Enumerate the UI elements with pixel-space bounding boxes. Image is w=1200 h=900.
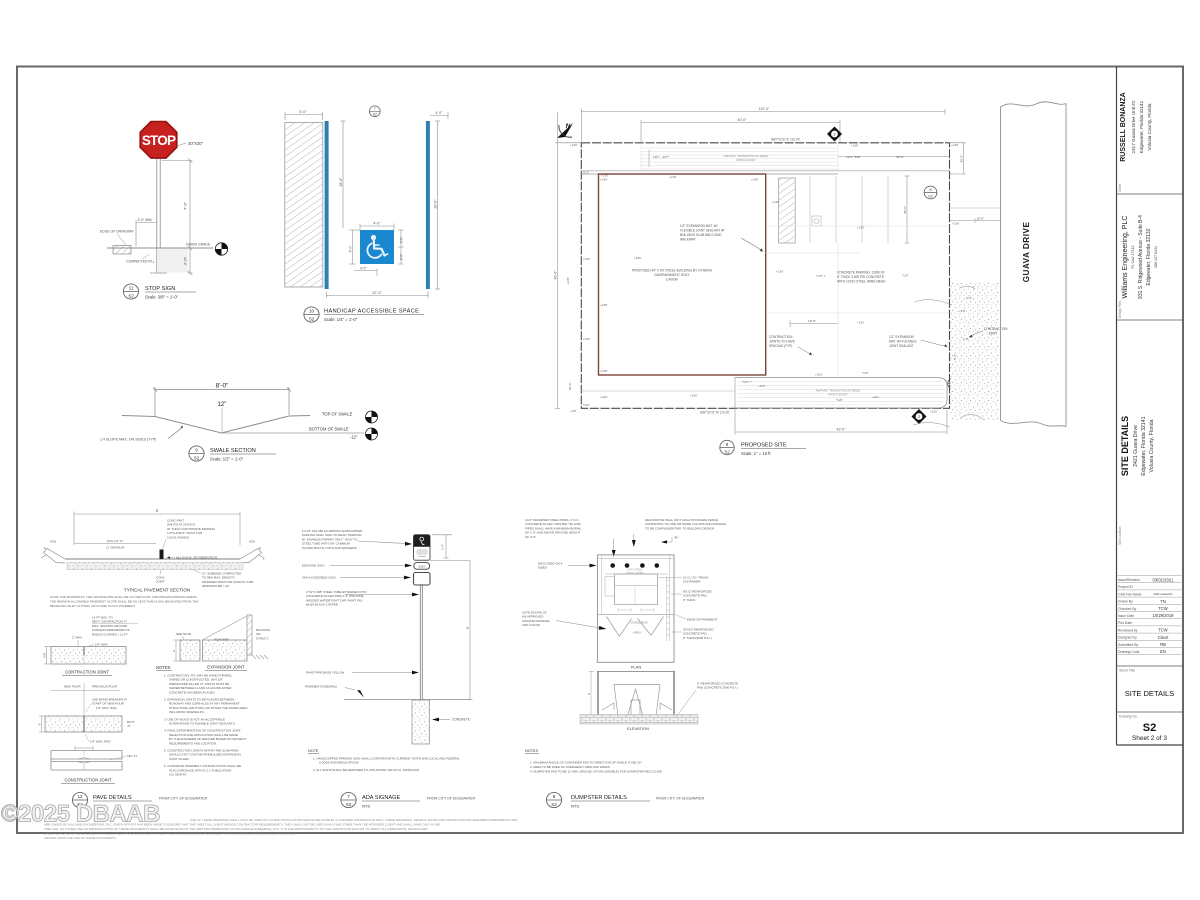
svg-text:JOINT: JOINT xyxy=(156,580,165,584)
svg-text:SEE NOTE: SEE NOTE xyxy=(176,632,191,636)
svg-text:Site Location: Site Location xyxy=(1118,526,1122,545)
svg-text:N89°52'31"E 110.00': N89°52'31"E 110.00' xyxy=(771,138,800,142)
svg-text:931 S. Ridgewood Avenue - Suit: 931 S. Ridgewood Avenue - Suite B-4 xyxy=(1138,215,1144,299)
svg-text:#10 W.W.M. OR FIBERCRETE: #10 W.W.M. OR FIBERCRETE xyxy=(176,556,217,560)
svg-text:RADIUS CURVES + 12 FT: RADIUS CURVES + 12 FT xyxy=(92,632,128,636)
svg-text:ELEVATION: ELEVATION xyxy=(627,726,649,731)
svg-text:PLATED BOLTS, NUTS AND WASHERS: PLATED BOLTS, NUTS AND WASHERS xyxy=(302,546,357,550)
svg-text:S2: S2 xyxy=(346,802,352,807)
svg-text:Williams Engineering, PLC: Williams Engineering, PLC xyxy=(1122,216,1129,299)
svg-text:S2: S2 xyxy=(1143,722,1156,734)
svg-text:Volusia County, Florida: Volusia County, Florida xyxy=(1147,103,1152,150)
svg-text:PAD (CONCRETE 3000 P.S.I.): PAD (CONCRETE 3000 P.S.I.) xyxy=(697,686,738,690)
svg-text:#6119 BLACK COFFEE: #6119 BLACK COFFEE xyxy=(306,603,338,607)
svg-text:8'-0": 8'-0" xyxy=(216,383,229,390)
svg-text:TN: TN xyxy=(1160,599,1166,604)
svg-text:+138': +138' xyxy=(600,369,608,373)
svg-text:DUMPSTER DETAILS: DUMPSTER DETAILS xyxy=(571,795,627,801)
svg-text:CONCRETE: CONCRETE xyxy=(452,718,470,722)
svg-text:2. ALL SIGNS SHALL BE DESIGN: 2. ALL SIGNS SHALL BE DESIGNED TO WITHST… xyxy=(313,768,420,772)
svg-text:TIME USE. NO OTHER USE OR REP: TIME USE. NO OTHER USE OR REPRODUCTION O… xyxy=(44,827,428,831)
svg-text:S89°52'31"W 110.00': S89°52'31"W 110.00' xyxy=(700,411,730,415)
svg-text:Sheet Title: Sheet Title xyxy=(1119,669,1135,673)
svg-text:ACI 330R-87.: ACI 330R-87. xyxy=(169,773,187,777)
svg-text:R: R xyxy=(259,546,261,550)
svg-text:30'-4": 30'-4" xyxy=(896,155,904,159)
svg-text:5': 5' xyxy=(466,626,470,629)
svg-text:2'-6": 2'-6" xyxy=(400,236,404,243)
svg-text:EN: EN xyxy=(1160,649,1166,654)
svg-text:CAD File Name: CAD File Name xyxy=(1118,592,1142,596)
svg-text:+138': +138' xyxy=(600,303,608,307)
svg-text:OF 3'-6": OF 3'-6" xyxy=(525,535,536,539)
svg-text:EXPANSION JOINT: EXPANSION JOINT xyxy=(207,665,245,670)
svg-text:SITE DETAILS: SITE DETAILS xyxy=(1120,416,1130,476)
svg-text:6" THICK: 6" THICK xyxy=(683,598,696,602)
svg-text:6" THICK(3000 P.S.I.): 6" THICK(3000 P.S.I.) xyxy=(683,636,712,640)
svg-text:USE OF THESE DRAWINGS SHALL ON: USE OF THESE DRAWINGS SHALL ONLY BE USED… xyxy=(190,818,518,822)
svg-text:PAINT PIPE BASE YELLOW: PAINT PIPE BASE YELLOW xyxy=(306,671,345,675)
svg-text:+0'0": +0'0" xyxy=(570,409,577,413)
svg-text:42'-0": 42'-0" xyxy=(837,428,847,432)
svg-text:6" THICK 3,000 PSI CONCRETE: 6" THICK 3,000 PSI CONCRETE xyxy=(837,275,884,279)
svg-text:PROPOSED 40' X 60' STEEL BUILD: PROPOSED 40' X 60' STEEL BUILDING BY OTH… xyxy=(632,269,713,273)
svg-text:+126': +126' xyxy=(690,394,698,398)
svg-text:NOTES: NOTES xyxy=(525,749,539,753)
svg-text:SCREENING: SCREENING xyxy=(630,621,649,625)
svg-text:CONCRETE PARKING: 2,886 SF: CONCRETE PARKING: 2,886 SF xyxy=(837,271,885,275)
svg-text:WITH 10X10 STEEL WIRE MESH: WITH 10X10 STEEL WIRE MESH xyxy=(837,280,886,284)
svg-text:9: 9 xyxy=(195,448,198,453)
svg-text:18'-0": 18'-0" xyxy=(339,177,343,187)
svg-text:ROADWAY: ROADWAY xyxy=(214,638,229,642)
svg-text:2: 2 xyxy=(918,415,920,419)
svg-text:-12": -12" xyxy=(350,435,358,440)
svg-text:INCLUDING SIDEWALKS.: INCLUDING SIDEWALKS. xyxy=(169,710,205,714)
svg-text:AND COLOR: AND COLOR xyxy=(522,623,541,627)
svg-text:TCW: TCW xyxy=(1158,628,1168,633)
svg-text:*127'-?: *127'-? xyxy=(742,380,752,384)
svg-text:CONTRACTION: CONTRACTION xyxy=(984,327,1008,331)
svg-text:8: 8 xyxy=(929,188,931,192)
svg-text:GUAVA DRIVE: GUAVA DRIVE xyxy=(1022,222,1031,283)
svg-text:CONTAINER: CONTAINER xyxy=(683,580,701,584)
svg-text:Submitted By: Submitted By xyxy=(1118,643,1138,647)
svg-text:WALKWAY: WALKWAY xyxy=(680,238,697,242)
svg-text:Client: Client xyxy=(1118,184,1122,192)
svg-text:RB: RB xyxy=(1160,642,1166,647)
svg-text:03/01/2021: 03/01/2021 xyxy=(1153,577,1175,582)
svg-text:FROM CITY OF EDGEWATER: FROM CITY OF EDGEWATER xyxy=(427,797,476,801)
svg-text:DIAGRAMMATIC ONLY: DIAGRAMMATIC ONLY xyxy=(654,273,690,277)
svg-text:FLEXIBLE JOINT SEALANT AT: FLEXIBLE JOINT SEALANT AT xyxy=(680,229,725,233)
svg-text:2: 2 xyxy=(834,133,836,137)
svg-text:Drawing Code: Drawing Code xyxy=(1118,650,1140,654)
svg-text:S2: S2 xyxy=(724,449,730,454)
svg-text:PLAN: PLAN xyxy=(631,665,642,670)
svg-text:CODES AND REGULATIONS: CODES AND REGULATIONS xyxy=(319,761,359,765)
svg-text:45'-2": 45'-2" xyxy=(960,155,964,163)
svg-text:18'-8": 18'-8" xyxy=(808,319,816,323)
svg-text:+108': +108' xyxy=(566,277,570,285)
svg-text:MATCH EXIST: MATCH EXIST xyxy=(736,158,755,162)
svg-text:JOINT: JOINT xyxy=(988,332,997,336)
svg-text:+102': +102' xyxy=(815,373,823,377)
svg-text:JT.: JT. xyxy=(127,724,131,728)
svg-text:EDGE OF PAVEMENT: EDGE OF PAVEMENT xyxy=(687,618,718,622)
svg-text:VAN ACCESSIBLE SIGN: VAN ACCESSIBLE SIGN xyxy=(302,576,336,580)
svg-text:6": 6" xyxy=(172,649,176,651)
svg-text:6"/8": 6"/8" xyxy=(43,652,47,658)
svg-text:MATCH EXIST: MATCH EXIST xyxy=(828,393,847,397)
svg-text:5'-0": 5'-0" xyxy=(349,245,353,253)
svg-text:2'X6' STEEL: 2'X6' STEEL xyxy=(627,568,643,572)
svg-text:*137': *137' xyxy=(583,403,590,407)
svg-text:1/2" EXPANSION: 1/2" EXPANSION xyxy=(889,335,915,339)
svg-text:*137'-?: *137'-? xyxy=(816,274,826,278)
svg-text:NOTES: NOTES xyxy=(156,665,171,670)
svg-text:Drawing No.: Drawing No. xyxy=(1119,715,1138,719)
svg-text:JOINTS TO HAVE: JOINTS TO HAVE xyxy=(769,340,795,344)
svg-text:THE MINIMUM ALLOWABLE PAVEMEN: THE MINIMUM ALLOWABLE PAVEMENT SLOPE SHA… xyxy=(50,599,198,603)
svg-text:RECEIVING INLET, GUTTER, OR: RECEIVING INLET, GUTTER, OR FLUME TO ANY… xyxy=(50,604,135,608)
svg-text:Scale: 1" = 10 ft: Scale: 1" = 10 ft xyxy=(741,451,771,456)
svg-text:5'-0": 5'-0" xyxy=(299,110,307,114)
svg-text:7: 7 xyxy=(347,794,350,799)
svg-text:110'-0": 110'-0" xyxy=(759,107,770,111)
svg-text:2,400SF: 2,400SF xyxy=(666,278,678,282)
svg-text:Scale: 1/4" = 1'-0": Scale: 1/4" = 1'-0" xyxy=(324,317,358,322)
svg-text:*137': *137' xyxy=(862,371,869,375)
svg-text:Edgewater, Florida 32141: Edgewater, Florida 32141 xyxy=(1139,100,1144,153)
svg-text:SPECIFICATIONS IN THIS DOCUMEN: SPECIFICATIONS IN THIS DOCUMENT. THE CLI… xyxy=(44,832,296,836)
svg-text:+1'8": +1'8" xyxy=(959,309,966,313)
svg-text:Scale: 3/8" = 1'-0": Scale: 3/8" = 1'-0" xyxy=(145,295,179,300)
svg-text:1/4" MAX. RAD: 1/4" MAX. RAD xyxy=(90,740,111,744)
svg-text:+138': +138' xyxy=(951,143,959,147)
svg-text:40'-0": 40'-0" xyxy=(554,270,558,280)
svg-text:CONTRACTION JOINT: CONTRACTION JOINT xyxy=(65,670,109,675)
svg-text:S2: S2 xyxy=(551,802,557,807)
svg-text:CONTRACTION: CONTRACTION xyxy=(769,335,793,339)
svg-text:ADA SIGNAGE: ADA SIGNAGE xyxy=(362,795,401,801)
svg-text:12: 12 xyxy=(77,794,83,799)
svg-text:W18: W18 xyxy=(249,540,256,544)
svg-text:STRUCT.: STRUCT. xyxy=(256,636,269,640)
svg-text:W18: W18 xyxy=(50,540,57,544)
svg-text:1/4" MAX. RAD.: 1/4" MAX. RAD. xyxy=(96,706,118,710)
svg-text:8'X10' GATES: 8'X10' GATES xyxy=(627,571,644,575)
svg-text:2421 Guava Drive: 2421 Guava Drive xyxy=(1133,425,1139,467)
svg-text:+139': +139' xyxy=(583,257,591,261)
svg-text:KEY JT.: KEY JT. xyxy=(127,754,138,758)
svg-text:LOCAL ROADS): LOCAL ROADS) xyxy=(167,535,189,539)
svg-text:ALTERNATIVE TO FLEXIBLE JOIN: ALTERNATIVE TO FLEXIBLE JOINT SEALANTS. xyxy=(169,722,236,726)
svg-text:+133': +133' xyxy=(857,226,865,230)
svg-text:PROPOSED SITE: PROPOSED SITE xyxy=(741,443,787,449)
svg-text:NOTE: FOR ROADWAYS, THE CROSS: NOTE: FOR ROADWAYS, THE CROSSSLOPE SHALL… xyxy=(50,595,197,599)
svg-text:45°: 45° xyxy=(674,536,679,540)
svg-text:TO BE COMPLEMENTARY TO BUILDI: TO BE COMPLEMENTARY TO BUILDING DESIGN xyxy=(645,526,714,530)
svg-text:+138': +138' xyxy=(772,200,780,204)
svg-text:STOP SIGN: STOP SIGN xyxy=(145,286,175,292)
svg-text:Volusia County, Florida: Volusia County, Florida xyxy=(1149,419,1155,472)
svg-text:+139': +139' xyxy=(634,256,642,260)
svg-text:Designed by: Designed by xyxy=(1118,636,1137,640)
svg-text:CONSTRUCTION JOINT: CONSTRUCTION JOINT xyxy=(65,778,112,783)
svg-text:JOINT FILLER.: JOINT FILLER. xyxy=(169,757,190,761)
svg-text:10: 10 xyxy=(309,309,315,314)
svg-text:12' MINIMUM: 12' MINIMUM xyxy=(106,546,125,550)
svg-text:7'-2": 7'-2" xyxy=(183,201,188,210)
svg-text:BUILDING SLAB AND CONC: BUILDING SLAB AND CONC xyxy=(680,233,722,237)
svg-text:REQUIREMENTS AND LOCATION.: REQUIREMENTS AND LOCATION. xyxy=(169,741,217,745)
svg-text:+126': +126' xyxy=(930,410,938,414)
svg-text:SIDES: SIDES xyxy=(538,566,547,570)
svg-text:+124': +124' xyxy=(758,384,766,388)
svg-text:7: 7 xyxy=(374,107,376,111)
svg-text:+138': +138' xyxy=(751,178,759,182)
svg-text:S2: S2 xyxy=(194,456,200,461)
svg-text:FROM CITY OF EDGEWATER: FROM CITY OF EDGEWATER xyxy=(656,797,705,801)
svg-text:*126': *126' xyxy=(836,398,843,402)
svg-text:MINIMUM LBR = 40: MINIMUM LBR = 40 xyxy=(202,584,229,588)
svg-text:1'-6": 1'-6" xyxy=(441,544,445,550)
svg-text:1:4 SLOPE MAX. ON SIDES (TYP): 1:4 SLOPE MAX. ON SIDES (TYP) xyxy=(100,438,156,442)
svg-text:2421 Guava Dr: 2421 Guava Dr xyxy=(1154,592,1173,596)
svg-text:S2: S2 xyxy=(309,317,315,322)
svg-text:4'-5": 4'-5" xyxy=(966,296,972,300)
svg-text:1. MAXIMUM ANGLE OF CONTAIN: 1. MAXIMUM ANGLE OF CONTAINER PAD TO DIR… xyxy=(530,761,643,765)
svg-text:FROM CITY OF EDGEWATER: FROM CITY OF EDGEWATER xyxy=(159,797,208,801)
svg-text:12'4" *160': 12'4" *160' xyxy=(846,155,861,159)
svg-text:R: R xyxy=(44,546,46,550)
svg-text:Issue Date: Issue Date xyxy=(1118,614,1134,618)
svg-text:Checked By: Checked By xyxy=(1118,607,1137,611)
svg-text:Drawn By: Drawn By xyxy=(1118,600,1133,604)
svg-text:RUSSELL BONANZA: RUSSELL BONANZA xyxy=(1120,92,1127,161)
svg-text:36'-0": 36'-0" xyxy=(903,206,907,214)
svg-text:+133': +133' xyxy=(857,321,865,325)
svg-text:FINISH GRADE: FINISH GRADE xyxy=(186,243,211,247)
svg-text:+138': +138' xyxy=(600,178,608,182)
svg-text:13'7" - 12'7": 13'7" - 12'7" xyxy=(653,155,669,159)
svg-text:4'-0": 4'-0" xyxy=(360,267,368,271)
svg-text:1'-8": 1'-8" xyxy=(963,337,969,341)
svg-text:4'-0": 4'-0" xyxy=(435,111,443,115)
svg-text:+138': +138' xyxy=(669,175,677,179)
svg-text:SPACING (TYP): SPACING (TYP) xyxy=(769,344,792,348)
svg-text:+126': +126' xyxy=(600,395,608,399)
svg-text:AREA: AREA xyxy=(633,631,641,635)
svg-text:HANDICAP ACCESSIBLE SPACE: HANDICAP ACCESSIBLE SPACE xyxy=(324,309,419,315)
svg-text:S2: S2 xyxy=(373,112,377,116)
svg-text:NOTE: NOTE xyxy=(308,749,319,753)
svg-text:+139': +139' xyxy=(583,337,591,341)
svg-text:1/2" EXPANSION MAT. W/: 1/2" EXPANSION MAT. W/ xyxy=(680,224,718,228)
svg-text:S2: S2 xyxy=(928,195,933,199)
svg-text:+138': +138' xyxy=(952,222,960,226)
svg-text:Edgewater, Florida 32132: Edgewater, Florida 32132 xyxy=(1146,228,1152,285)
svg-text:386.427.8431: 386.427.8431 xyxy=(1154,246,1158,268)
svg-text:©2025 DBAAB: ©2025 DBAAB xyxy=(1,801,160,828)
svg-text:TYPICAL PAVEMENT SECTION: TYPICAL PAVEMENT SECTION xyxy=(124,588,190,593)
svg-text:Scale: 1/2" = 1'-0": Scale: 1/2" = 1'-0" xyxy=(210,457,244,462)
svg-text:3'-0" MIN.: 3'-0" MIN. xyxy=(138,218,153,222)
svg-text:SOIL 1/4 "D": SOIL 1/4 "D" xyxy=(107,539,124,543)
svg-text:2" MAX: 2" MAX xyxy=(72,636,82,640)
svg-text:+138': +138' xyxy=(851,144,859,148)
svg-text:2. AREA TO BE FREE OF OVERHE: 2. AREA TO BE FREE OF OVERHEAD LINES AND… xyxy=(530,765,610,769)
svg-text:3. DUMPSTER PAD TO BE 12' M: 3. DUMPSTER PAD TO BE 12' MIN. (SINGLE) … xyxy=(530,770,663,774)
svg-text:BOTTOM OF SWALE: BOTTOM OF SWALE xyxy=(309,427,349,432)
svg-text:2'-6": 2'-6" xyxy=(400,253,404,260)
svg-text:S2: S2 xyxy=(128,294,134,299)
svg-text:Project ID: Project ID xyxy=(1118,585,1133,589)
svg-text:Reviewed by: Reviewed by xyxy=(1118,628,1138,632)
svg-text:NEW POUR: NEW POUR xyxy=(64,685,81,689)
svg-text:PREVIOUS POUR: PREVIOUS POUR xyxy=(92,685,118,689)
svg-text:15'-0": 15'-0" xyxy=(977,216,985,220)
svg-text:TCW: TCW xyxy=(1158,606,1168,611)
svg-text:40'-0": 40'-0" xyxy=(738,118,748,122)
svg-text:STOP: STOP xyxy=(142,133,176,148)
svg-text:10/29/2019: 10/29/2019 xyxy=(1153,613,1175,618)
svg-text:Design Firm: Design Firm xyxy=(1118,300,1122,318)
svg-text:12'-0": 12'-0" xyxy=(372,291,382,295)
svg-text:6": 6" xyxy=(38,723,42,725)
svg-text:8: 8 xyxy=(553,794,556,799)
svg-text:MAT. W/ FLEXIBLE: MAT. W/ FLEXIBLE xyxy=(889,340,917,344)
svg-text:+130': +130' xyxy=(776,270,784,274)
svg-text:SWALE SECTION: SWALE SECTION xyxy=(210,448,256,454)
svg-text:NTS: NTS xyxy=(362,804,370,809)
svg-text:50'-0": 50'-0" xyxy=(568,382,572,390)
svg-text:JOINT SEALANT: JOINT SEALANT xyxy=(889,344,914,348)
svg-text:$250: $250 xyxy=(419,565,426,569)
svg-text:Client: Client xyxy=(1158,635,1170,640)
svg-text:COMPACTED FILL: COMPACTED FILL xyxy=(126,260,155,264)
svg-text:+101': +101' xyxy=(872,395,880,399)
svg-text:2417 Guava Drive Unit #2: 2417 Guava Drive Unit #2 xyxy=(1131,100,1136,153)
svg-text:EDGE OF DRIVEWAY: EDGE OF DRIVEWAY xyxy=(100,230,135,234)
svg-text:1/4" MAX: 1/4" MAX xyxy=(95,643,108,647)
svg-text:11: 11 xyxy=(129,286,134,291)
svg-text:30"X30": 30"X30" xyxy=(188,141,204,146)
svg-text:4'-0": 4'-0" xyxy=(373,222,381,226)
svg-text:Sheet 2 of 3: Sheet 2 of 3 xyxy=(1132,735,1167,742)
svg-text:26'-0": 26'-0" xyxy=(434,199,438,209)
svg-text:FL CA# 27412: FL CA# 27412 xyxy=(1131,245,1135,268)
svg-text:*137': *137' xyxy=(902,274,909,278)
svg-text:$250 FINE SIGN: $250 FINE SIGN xyxy=(302,564,325,568)
svg-text:2'-0": 2'-0" xyxy=(183,256,188,265)
svg-text:12": 12" xyxy=(218,402,227,408)
svg-text:+139': +139' xyxy=(570,143,578,147)
svg-text:Edgewater, Florida 32141: Edgewater, Florida 32141 xyxy=(1141,416,1147,475)
svg-text:5'-0": 5'-0" xyxy=(953,354,957,360)
svg-text:CONCRETE HAS BEEN PLACED: CONCRETE HAS BEEN PLACED xyxy=(169,690,216,694)
svg-text:ARISING FROM THE USE OF THESE: ARISING FROM THE USE OF THESE DOCUMENTS. xyxy=(44,836,117,840)
svg-text:TOP OF SWALE: TOP OF SWALE xyxy=(322,412,353,417)
svg-text:PAVEMENT/SIDEWALK: PAVEMENT/SIDEWALK xyxy=(305,685,337,689)
svg-text:Issue/Revision: Issue/Revision xyxy=(1118,578,1140,582)
svg-text:Plot Date: Plot Date xyxy=(1118,621,1132,625)
svg-text:NTS: NTS xyxy=(571,804,579,809)
svg-text:SITE DETAILS: SITE DETAILS xyxy=(1125,689,1174,698)
